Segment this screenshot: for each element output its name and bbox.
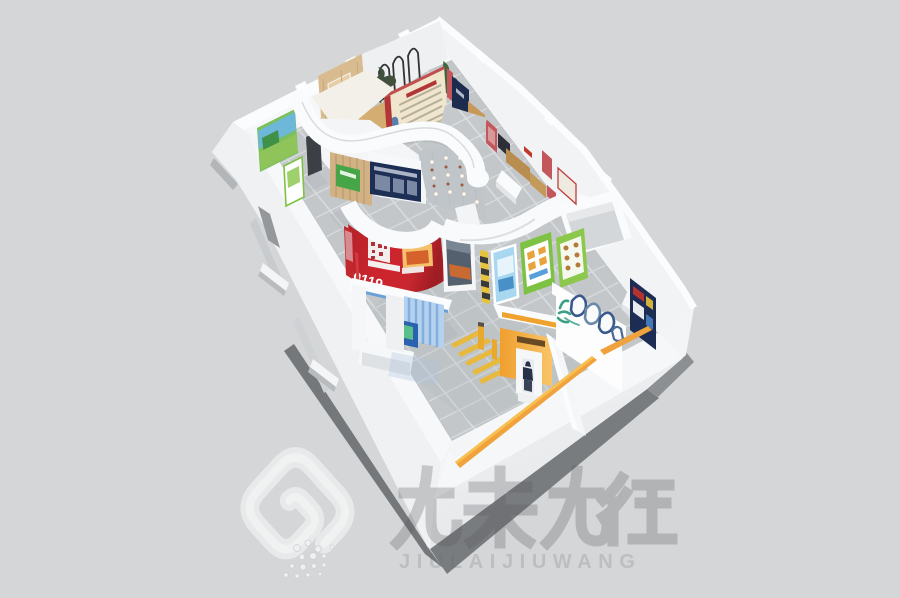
svg-text:JIULAIJIUWANG: JIULAIJIUWANG — [399, 551, 641, 573]
